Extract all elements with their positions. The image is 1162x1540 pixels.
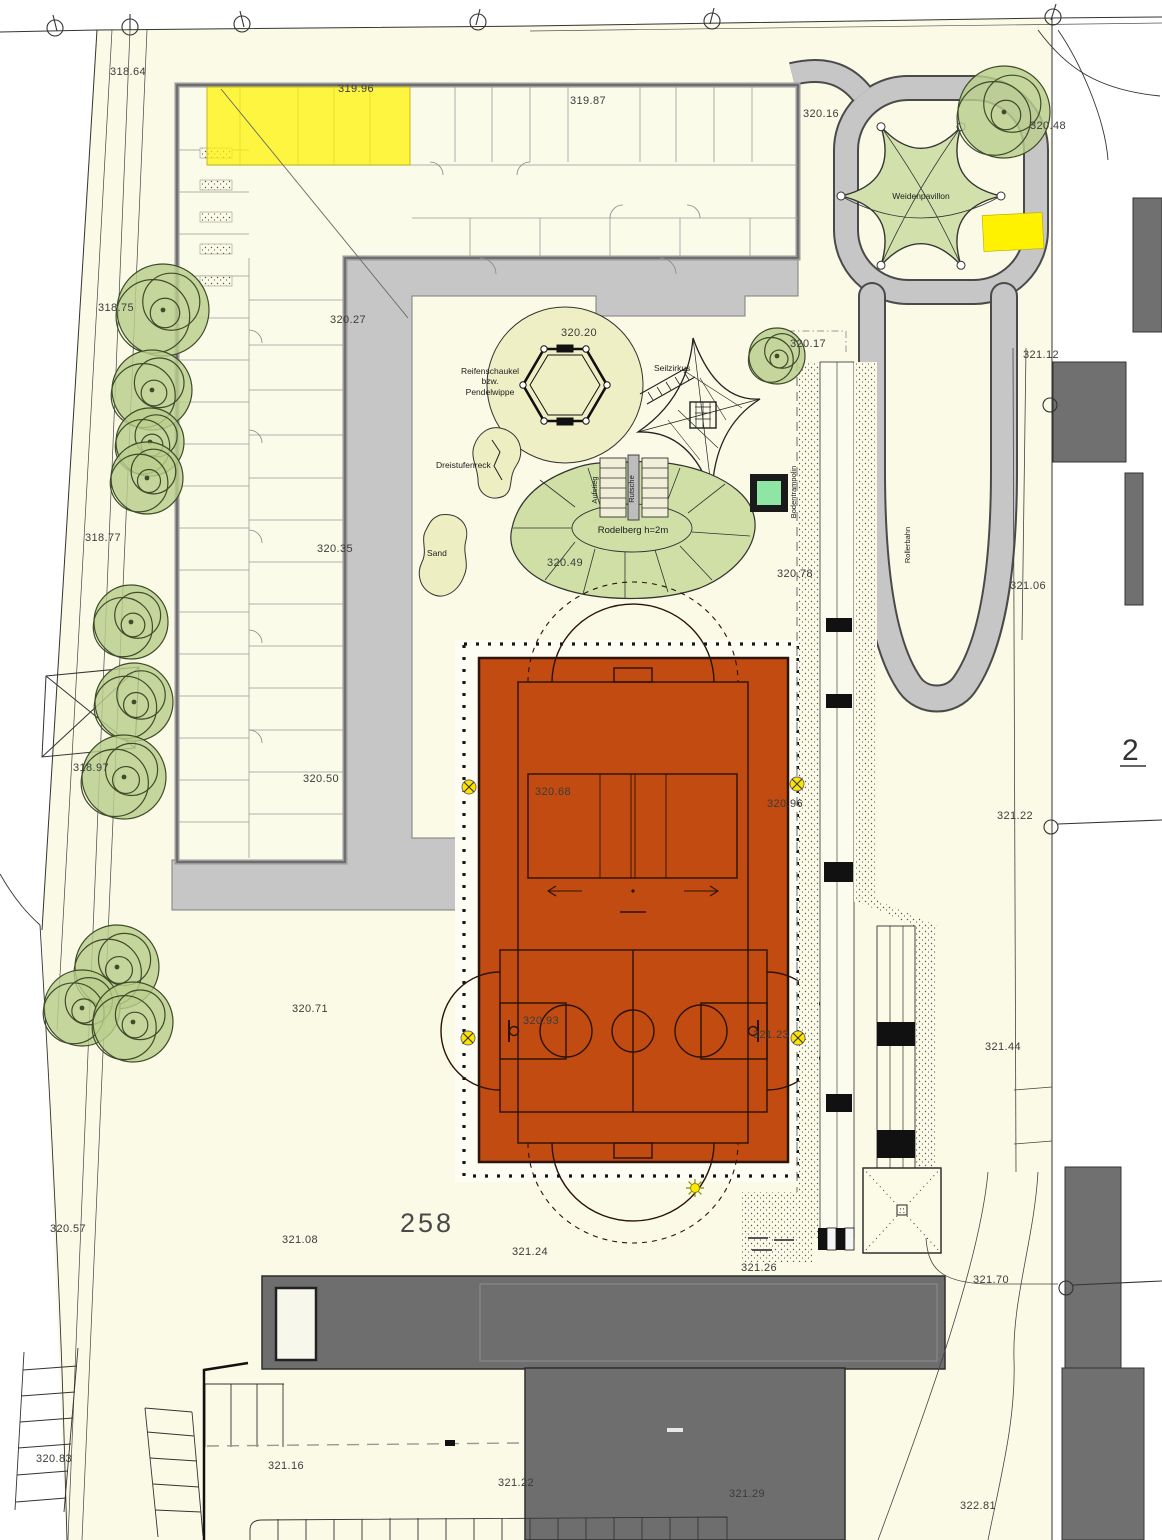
spot-elevation-label: 319.96	[338, 83, 374, 95]
spot-elevation-label: 320.96	[767, 798, 803, 810]
spot-elevation-label: 320.57	[50, 1223, 86, 1235]
gravel-patch	[742, 1192, 812, 1262]
spot-elevation-label: 321.26	[741, 1262, 777, 1274]
spot-elevation-label: 320.49	[547, 557, 583, 569]
dreistufenreck-label: Dreistufenreck	[436, 460, 492, 470]
spot-elevation-label: 320.93	[523, 1015, 559, 1027]
spot-elevation-label: 322.81	[960, 1500, 996, 1512]
spot-elevation-label: 321.23	[753, 1029, 789, 1041]
spot-elevation-label: 320.78	[777, 568, 813, 580]
spot-elevation-label: 318.75	[98, 302, 134, 314]
spot-elevation-label: 321.08	[282, 1234, 318, 1246]
spot-elevation-label: 320.71	[292, 1003, 328, 1015]
rutsche-label: Rutsche	[627, 475, 636, 503]
spot-elevation-label: 320.16	[803, 108, 839, 120]
tree-icon	[81, 735, 166, 819]
spot-elevation-label: 321.16	[268, 1460, 304, 1472]
sports-court	[441, 582, 826, 1243]
spot-elevation-label: 321.22	[498, 1477, 534, 1489]
rodelberg-label: Rodelberg h=2m	[598, 525, 669, 536]
parcel-number-258: 258	[400, 1208, 454, 1238]
neighbor-building	[1065, 1167, 1121, 1369]
reifenschaukel-label-2: bzw.	[481, 376, 498, 386]
pavilion-square	[863, 1168, 941, 1253]
spot-elevation-label: 319.87	[570, 95, 606, 107]
spot-elevation-label: 321.06	[1010, 580, 1046, 592]
building-block	[525, 1368, 845, 1540]
building-slab	[262, 1276, 945, 1369]
spot-elevation-label: 320.83	[36, 1453, 72, 1465]
spot-elevation-label: 320.27	[330, 314, 366, 326]
bodentrampolin-label: Bodentrampolin	[789, 466, 798, 519]
aufstieg-label: Aufstieg	[590, 476, 599, 503]
spot-elevation-label: 318.77	[85, 532, 121, 544]
spot-elevation-label: 320.48	[1030, 120, 1066, 132]
reifenschaukel-label-3: Pendelwippe	[466, 387, 515, 397]
seilzirkus-label: Seilzirkus	[654, 363, 690, 373]
tree-icon	[110, 442, 183, 514]
spot-elevation-label: 318.64	[110, 66, 146, 78]
spot-elevation-label: 318.97	[73, 762, 109, 774]
parcel-number-2: 2	[1122, 734, 1139, 767]
weidenpavilion-label: Weidenpavillon	[892, 191, 950, 201]
tree-icon	[92, 982, 173, 1062]
highlighted-rooms	[207, 87, 410, 165]
neighbor-building	[1125, 473, 1143, 605]
neighbor-building	[1062, 1368, 1144, 1540]
spot-elevation-label: 320.50	[303, 773, 339, 785]
stairwell-court	[276, 1288, 316, 1360]
gravel-strip-right	[854, 362, 877, 902]
reifenschaukel-label-1: Reifenschaukel	[461, 366, 519, 376]
spot-elevation-label: 321.12	[1023, 349, 1059, 361]
lamp-symbol	[686, 1179, 704, 1197]
neighbor-building	[1133, 198, 1162, 332]
neighbor-building	[1053, 362, 1126, 462]
spot-elevation-label: 320.17	[790, 338, 826, 350]
spot-elevation-label: 321.70	[973, 1274, 1009, 1286]
spot-elevation-label: 321.29	[729, 1488, 765, 1500]
tree-icon	[94, 663, 173, 741]
spot-elevation-label: 320.35	[317, 543, 353, 555]
striped-block	[818, 1228, 854, 1250]
tree-icon	[93, 585, 168, 659]
spot-elevation-label: 321.24	[512, 1246, 548, 1258]
sand-label: Sand	[427, 548, 447, 558]
rollerbahn-label: Rollerbahn	[903, 527, 912, 563]
site-plan: Weidenpavillon Seilzirkus Reifenschaukel…	[0, 0, 1162, 1540]
highlight-rectangle	[982, 212, 1044, 251]
tree-icon	[748, 328, 805, 384]
spot-elevation-label: 321.22	[997, 810, 1033, 822]
site-plan-canvas: Weidenpavillon Seilzirkus Reifenschaukel…	[0, 0, 1162, 1540]
tree-icon	[957, 66, 1050, 158]
bodentrampolin-icon	[750, 474, 788, 512]
spot-elevation-label: 321.44	[985, 1041, 1021, 1053]
spot-elevation-label: 320.20	[561, 327, 597, 339]
spot-elevation-label: 320.68	[535, 786, 571, 798]
